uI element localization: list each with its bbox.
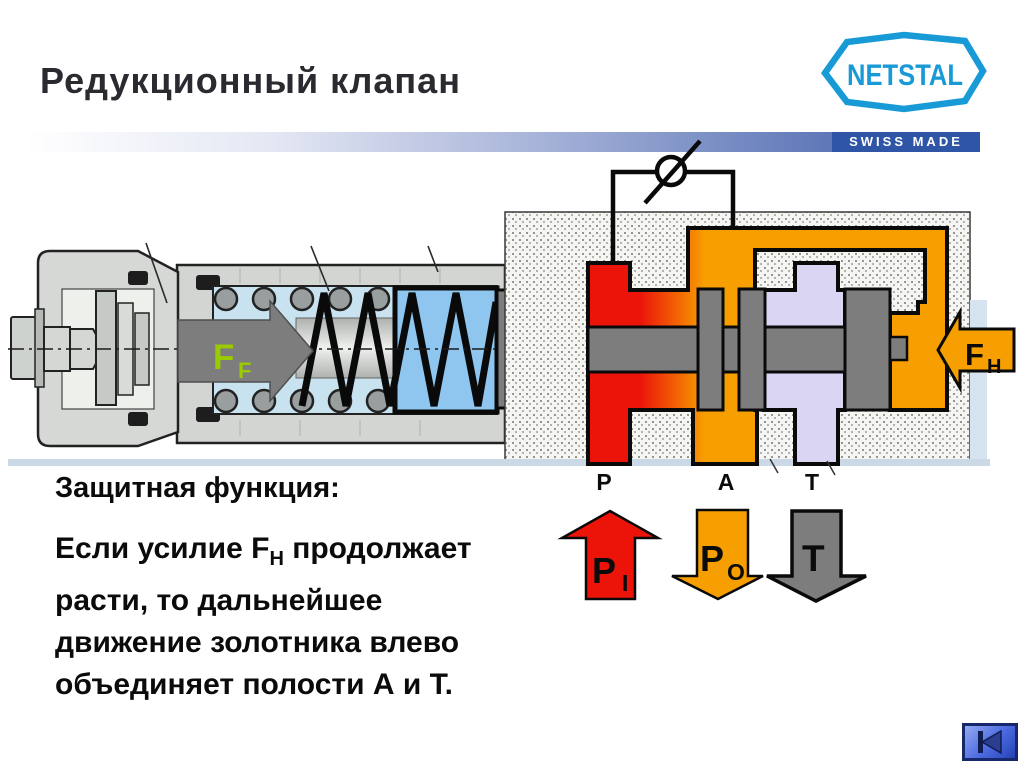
housing-shadow <box>970 300 987 460</box>
outlet-pressure-arrow: P O <box>672 510 763 599</box>
inlet-pressure-arrow: P I <box>562 511 658 599</box>
hydraulic-force-sub: H <box>987 356 1001 378</box>
baseline-strip <box>8 459 990 466</box>
inlet-label: P <box>592 550 616 591</box>
port-a-label: A <box>718 469 735 495</box>
spring-force-label: F <box>213 338 234 377</box>
spring-force-sub: F <box>238 358 251 383</box>
skip-to-start-icon <box>973 728 1007 756</box>
outlet-label-sub: O <box>727 559 745 585</box>
adjust-bolt-head <box>11 317 36 379</box>
tank-flow-arrow: T <box>767 511 866 601</box>
protection-line4: объединяет полости А и Т. <box>55 664 575 706</box>
port-t-label: T <box>805 469 819 495</box>
protection-line2: расти, то дальнейшее <box>55 580 575 622</box>
protection-line1: Если усилие FH продолжает <box>55 528 575 580</box>
port-labels: P A T <box>596 469 819 495</box>
inlet-label-sub: I <box>622 570 628 596</box>
tank-label: T <box>802 538 825 579</box>
skip-to-start-button[interactable] <box>962 723 1018 761</box>
protection-heading: Защитная функция: <box>55 472 340 505</box>
outlet-label: P <box>700 538 724 579</box>
protection-body: Если усилие FH продолжает расти, то даль… <box>55 528 575 706</box>
protection-line3: движение золотника влево <box>55 622 575 664</box>
port-p-label: P <box>596 469 611 495</box>
hydraulic-force-label: F <box>965 337 984 372</box>
